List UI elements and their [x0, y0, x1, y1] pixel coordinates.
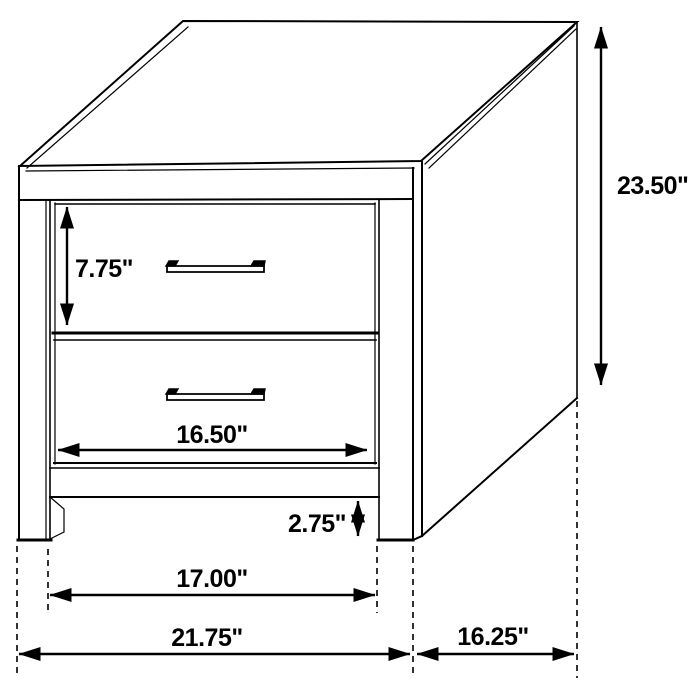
tabletop-top-face	[20, 21, 577, 166]
handle-left-cap	[166, 389, 178, 394]
right-leg-corner-bottom	[413, 536, 422, 540]
tabletop	[20, 21, 577, 200]
dim-drawer-front-height: 7.75"	[67, 207, 133, 325]
dim-label-base-clearance: 2.75"	[288, 510, 346, 538]
handle-left-cap	[166, 261, 178, 266]
handle-bar	[167, 266, 264, 272]
cabinet-frame	[19, 162, 422, 540]
dim-label-inner-leg-span: 17.00"	[176, 565, 247, 593]
dim-label-drawer-front-height: 7.75"	[75, 255, 133, 283]
dim-overall-width: 21.75"	[19, 624, 410, 654]
dim-side-depth: 16.25"	[417, 623, 574, 654]
dim-base-clearance: 2.75"	[288, 501, 358, 538]
handle-right-cap	[251, 389, 265, 394]
dim-inner-leg-span: 17.00"	[50, 565, 375, 595]
dim-label-overall-width: 21.75"	[171, 624, 242, 652]
drawer-handle-icon	[166, 389, 265, 400]
dim-label-drawer-width: 16.50"	[176, 421, 247, 449]
tabletop-front-band-bottom	[20, 199, 413, 200]
diagram-canvas: 7.75" 16.50" 2.75" 17.00" 21.75" 16.25"	[0, 0, 700, 700]
drawer-handle-icon	[166, 261, 265, 272]
handle-bar	[167, 394, 264, 400]
tabletop-right-bevel-line-outer	[425, 26, 574, 164]
nightstand-dimension-diagram: 7.75" 16.50" 2.75" 17.00" 21.75" 16.25"	[0, 0, 700, 700]
side-panel	[422, 22, 577, 536]
dim-overall-height: 23.50"	[601, 27, 688, 385]
dim-drawer-width: 16.50"	[58, 421, 367, 450]
side-panel-bottom-edge	[422, 398, 577, 536]
dim-label-side-depth: 16.25"	[457, 623, 528, 651]
left-leg-inner-side-face	[50, 497, 64, 539]
dimension-annotations: 7.75" 16.50" 2.75" 17.00" 21.75" 16.25"	[17, 27, 688, 678]
tabletop-right-bevel-line-inner	[429, 29, 576, 168]
tabletop-left-bevel-line	[27, 27, 188, 168]
tabletop-front-edge-inner-line	[26, 168, 414, 171]
dim-label-overall-height: 23.50"	[617, 172, 688, 200]
base-rail-and-legs	[18, 468, 422, 540]
handle-right-cap	[251, 261, 265, 266]
